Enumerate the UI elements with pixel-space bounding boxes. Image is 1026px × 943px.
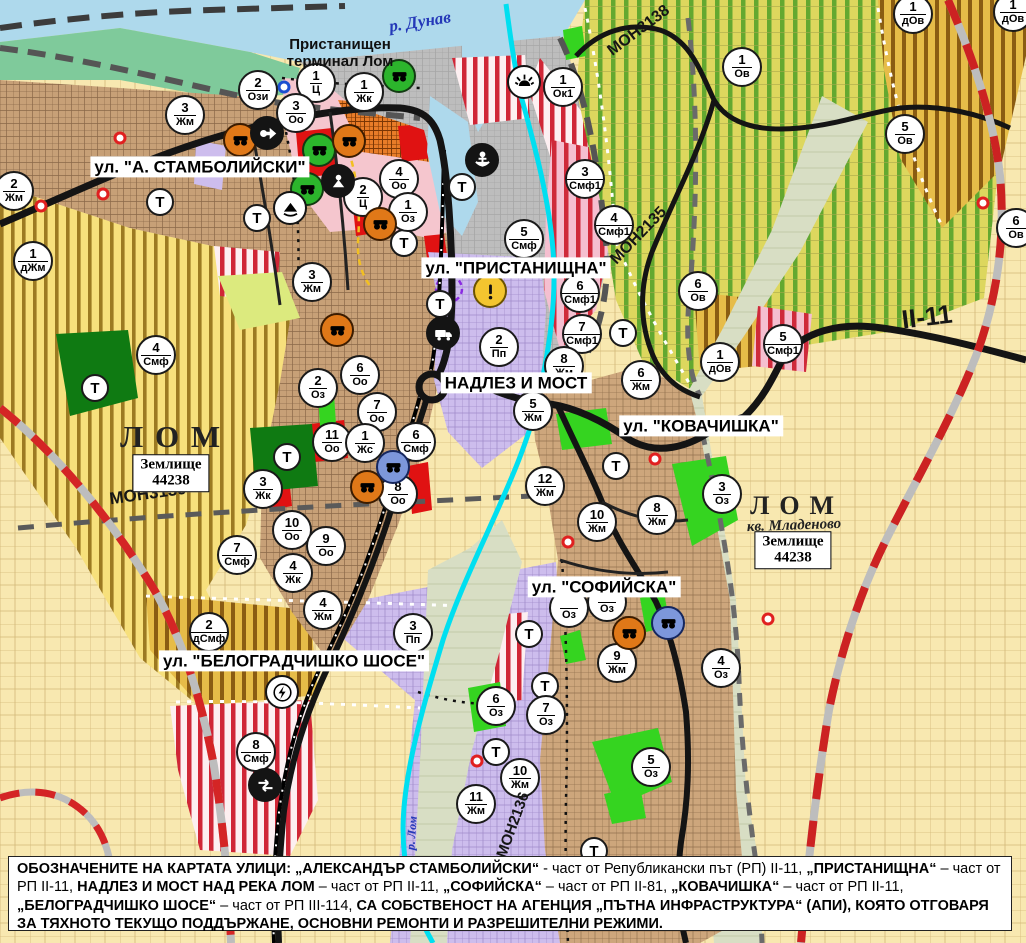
zone-marker-4-Смф: 4Смф: [136, 335, 176, 375]
map-caption: ОБОЗНАЧЕНИТЕ НА КАРТАТА УЛИЦИ: „АЛЕКСАНД…: [8, 856, 1012, 931]
zone-marker-2-Ози: 2Ози: [238, 70, 278, 110]
zone-marker-5-Оз: 5Оз: [631, 747, 671, 787]
zone-marker-7-Смф: 7Смф: [217, 535, 257, 575]
zone-marker-3-Оз: 3Оз: [702, 474, 742, 514]
caption-segment: „СОФИЙСКА“: [443, 879, 542, 895]
caption-segment: „КОВАЧИШКА“: [671, 879, 779, 895]
street-label-pristanishtna: ул. "ПРИСТАНИЩНА": [421, 257, 610, 278]
zone-marker-3-Пп: 3Пп: [393, 613, 433, 653]
place-label-port-terminal: Пристанищен терминал Лом: [287, 37, 394, 71]
landplot-box-2: Землище44238: [754, 531, 831, 569]
zone-marker-7-Оз: 7Оз: [526, 695, 566, 735]
dot-marker: [97, 188, 110, 201]
monument-icon: [376, 450, 410, 484]
zone-marker-6-Ов: 6Ов: [678, 271, 718, 311]
caption-segment: – част от РП II-81,: [542, 879, 671, 895]
monument-icon: [320, 313, 354, 347]
zone-marker-1-дЖм: 1дЖм: [13, 241, 53, 281]
zone-marker-5-Смф1: 5Смф1: [763, 324, 803, 364]
monument-icon: [363, 207, 397, 241]
lightning-icon: [265, 675, 299, 709]
dot-marker: [35, 200, 48, 213]
zone-marker-2-дСмф: 2дСмф: [189, 612, 229, 652]
landplot-box-1: Землище44238: [132, 454, 209, 492]
zone-marker-8-Жм: 8Жм: [637, 495, 677, 535]
street-label-kovachishka: ул. "КОВАЧИШКА": [619, 415, 783, 436]
place-label-lom-city-west: ЛОМ: [120, 419, 232, 455]
zone-marker-12-Жм: 12Жм: [525, 466, 565, 506]
zone-marker-3-Жм: 3Жм: [165, 95, 205, 135]
zone-marker-1-дОв: 1дОв: [700, 342, 740, 382]
truck-icon: [426, 316, 460, 350]
place-label-danube: р. Дунав: [388, 7, 452, 36]
zone-marker-9-Оо: 9Оо: [306, 526, 346, 566]
caption-segment: - част от Републикански път (РП) II-11,: [543, 861, 806, 877]
zone-marker-1-Жк: 1Жк: [344, 72, 384, 112]
zone-marker-11-Жм: 11Жм: [456, 784, 496, 824]
zone-marker-6-Жм: 6Жм: [621, 360, 661, 400]
mountain-icon: [273, 191, 307, 225]
zone-marker-6-Оо: 6Оо: [340, 355, 380, 395]
zone-marker-3-Жк: 3Жк: [243, 469, 283, 509]
t-marker: Т: [243, 204, 271, 232]
zone-marker-3-Смф1: 3Смф1: [565, 159, 605, 199]
caption-segment: НАДЛЕЗ И МОСТ НАД РЕКА ЛОМ: [77, 879, 315, 895]
dot-marker: [114, 132, 127, 145]
place-label-lom-river: р. Лом: [403, 816, 420, 851]
sun-icon: [507, 65, 541, 99]
street-label-sofiyska: ул. "СОФИЙСКА": [528, 576, 681, 597]
street-label-stambolijski: ул. "А. СТАМБОЛИЙСКИ": [90, 156, 309, 177]
street-label-belogradchishko: ул. "БЕЛОГРАДЧИШКО ШОСЕ": [159, 650, 429, 671]
zone-marker-1-дОв: 1дОв: [993, 0, 1026, 32]
t-marker: Т: [448, 173, 476, 201]
zone-marker-6-Смф1: 6Смф1: [560, 273, 600, 313]
zoning-map: ул. "А. СТАМБОЛИЙСКИ"ул. "ПРИСТАНИЩНА"НА…: [0, 0, 1026, 943]
monument-icon: [332, 124, 366, 158]
zone-marker-2-Оз: 2Оз: [298, 368, 338, 408]
zone-marker-1-дОв: 1дОв: [893, 0, 933, 34]
exclaim-icon: [473, 274, 507, 308]
zone-marker-4-Жм: 4Жм: [303, 590, 343, 630]
dot-marker: [562, 536, 575, 549]
t-marker: Т: [426, 290, 454, 318]
street-label-nadlez-i-most: НАДЛЕЗ И МОСТ: [441, 372, 592, 393]
dot-marker: [471, 755, 484, 768]
zone-marker-4-Оз: 4Оз: [701, 648, 741, 688]
zone-marker-6-Оз: 6Оз: [476, 686, 516, 726]
arrow-icon: [250, 116, 284, 150]
road-label-mon3138: МОН3138: [604, 2, 673, 60]
caption-segment: „ПРИСТАНИЩНА“: [806, 861, 936, 877]
zone-marker-5-Смф: 5Смф: [504, 219, 544, 259]
zone-marker-8-Смф: 8Смф: [236, 732, 276, 772]
person-icon: [321, 164, 355, 198]
t-marker: Т: [146, 188, 174, 216]
zone-marker-2-Пп: 2Пп: [479, 327, 519, 367]
monument-icon: [612, 616, 646, 650]
caption-segment: ОБОЗНАЧЕНИТЕ НА КАРТАТА УЛИЦИ: „АЛЕКСАНД…: [17, 861, 543, 877]
zone-marker-6-Ов: 6Ов: [996, 208, 1026, 248]
zone-marker-5-Жм: 5Жм: [513, 391, 553, 431]
zone-marker-5-Ов: 5Ов: [885, 114, 925, 154]
t-marker: Т: [609, 319, 637, 347]
t-marker: Т: [81, 374, 109, 402]
t-marker: Т: [273, 443, 301, 471]
dot-marker: [278, 81, 291, 94]
interchange-icon: [248, 768, 282, 802]
monument-icon: [651, 606, 685, 640]
t-marker: Т: [602, 452, 630, 480]
zone-marker-10-Жм: 10Жм: [577, 502, 617, 542]
dot-marker: [977, 197, 990, 210]
t-marker: Т: [515, 620, 543, 648]
caption-segment: – част от РП III-114,: [216, 898, 356, 914]
road-label-ii-11: II-11: [900, 299, 954, 336]
caption-segment: – част от РП II-11,: [315, 879, 443, 895]
zone-marker-1-Ок1: 1Ок1: [543, 67, 583, 107]
caption-segment: – част от РП II-11,: [779, 879, 903, 895]
zone-marker-4-Жк: 4Жк: [273, 553, 313, 593]
zone-marker-3-Жм: 3Жм: [292, 262, 332, 302]
road-label-mon2136: МОН2136: [493, 790, 532, 860]
dot-marker: [762, 613, 775, 626]
anchor-icon: [465, 143, 499, 177]
t-marker: Т: [482, 738, 510, 766]
caption-segment: „БЕЛОГРАДЧИШКО ШОСЕ“: [17, 898, 216, 914]
overlay: ул. "А. СТАМБОЛИЙСКИ"ул. "ПРИСТАНИЩНА"НА…: [0, 0, 1026, 943]
zone-marker-1-Ов: 1Ов: [722, 47, 762, 87]
dot-marker: [649, 453, 662, 466]
zone-marker-2-Жм: 2Жм: [0, 171, 34, 211]
